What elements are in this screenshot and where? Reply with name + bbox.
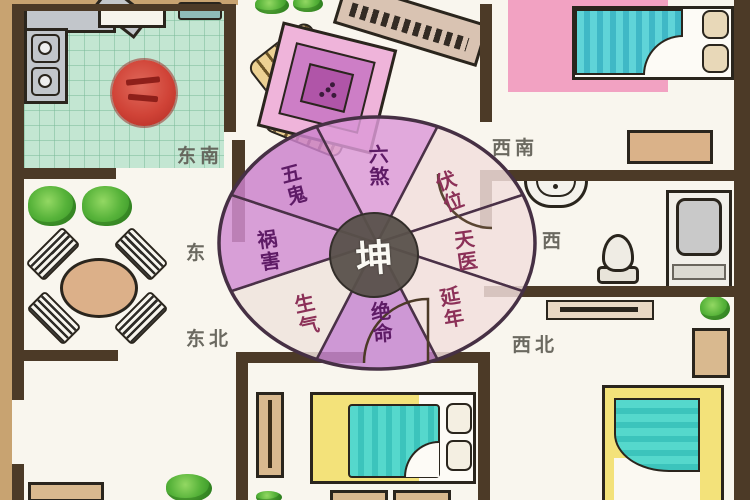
direction-label-northwest: 西北 <box>512 330 558 357</box>
pillow <box>446 403 472 434</box>
pillow <box>702 10 729 39</box>
wall <box>480 4 492 122</box>
wall <box>478 352 490 500</box>
plant <box>28 186 76 226</box>
sink-drain-icon <box>553 184 558 189</box>
compass-center-label: 坤 <box>354 227 395 283</box>
pillow <box>702 44 729 73</box>
shower-glass <box>676 198 722 256</box>
plant <box>255 0 289 14</box>
sector-label-fuwei: 伏位 <box>428 166 470 217</box>
toilet-bowl <box>602 234 634 272</box>
dresser <box>627 130 713 164</box>
wall <box>24 168 116 179</box>
wall <box>734 0 750 500</box>
pillow <box>446 440 472 471</box>
wall <box>224 4 236 132</box>
plant <box>166 474 212 500</box>
shower-tray <box>672 264 726 280</box>
sector-label-liusha: 六煞 <box>363 144 394 189</box>
sector-label-jueming: 绝命 <box>365 300 398 346</box>
sector-label-shengqi: 生气 <box>287 290 325 339</box>
burner-ring-icon <box>38 41 52 55</box>
plant <box>82 186 132 226</box>
wall <box>12 4 234 11</box>
nightstand <box>330 490 388 500</box>
wall <box>236 352 248 500</box>
wall <box>236 352 364 363</box>
wall <box>480 181 492 229</box>
wall <box>12 4 24 400</box>
direction-label-southwest: 西南 <box>492 133 538 160</box>
direction-label-northeast: 东北 <box>186 324 232 351</box>
wall <box>232 140 245 242</box>
direction-label-southeast: 东南 <box>177 141 223 168</box>
direction-label-west: 西 <box>542 226 565 253</box>
direction-label-east: 东 <box>186 238 209 265</box>
wall <box>480 170 734 181</box>
plant <box>293 0 323 12</box>
burner-ring-icon <box>38 74 52 88</box>
red-seal-stamp <box>112 60 176 126</box>
cabinet-line <box>268 400 272 468</box>
wall <box>24 350 118 361</box>
shelf-bar <box>560 307 638 312</box>
sector-label-yannian: 延年 <box>433 284 469 332</box>
nightstand <box>393 490 451 500</box>
sector-label-tianyi: 天医 <box>448 227 483 275</box>
floorplan-canvas: 六煞 伏位 天医 延年 绝命 生气 祸害 五鬼 坤 东南 西南 东 西 东北 西… <box>0 0 750 500</box>
sector-label-wugui: 五鬼 <box>273 160 312 210</box>
dining-table <box>60 258 138 318</box>
tall-cabinet <box>692 328 730 378</box>
plant <box>700 296 730 320</box>
edge-left <box>0 0 12 500</box>
low-table <box>28 482 104 500</box>
wall <box>484 286 734 297</box>
sector-label-huohai: 祸害 <box>251 227 286 275</box>
plant <box>256 491 282 500</box>
wall <box>12 464 24 500</box>
